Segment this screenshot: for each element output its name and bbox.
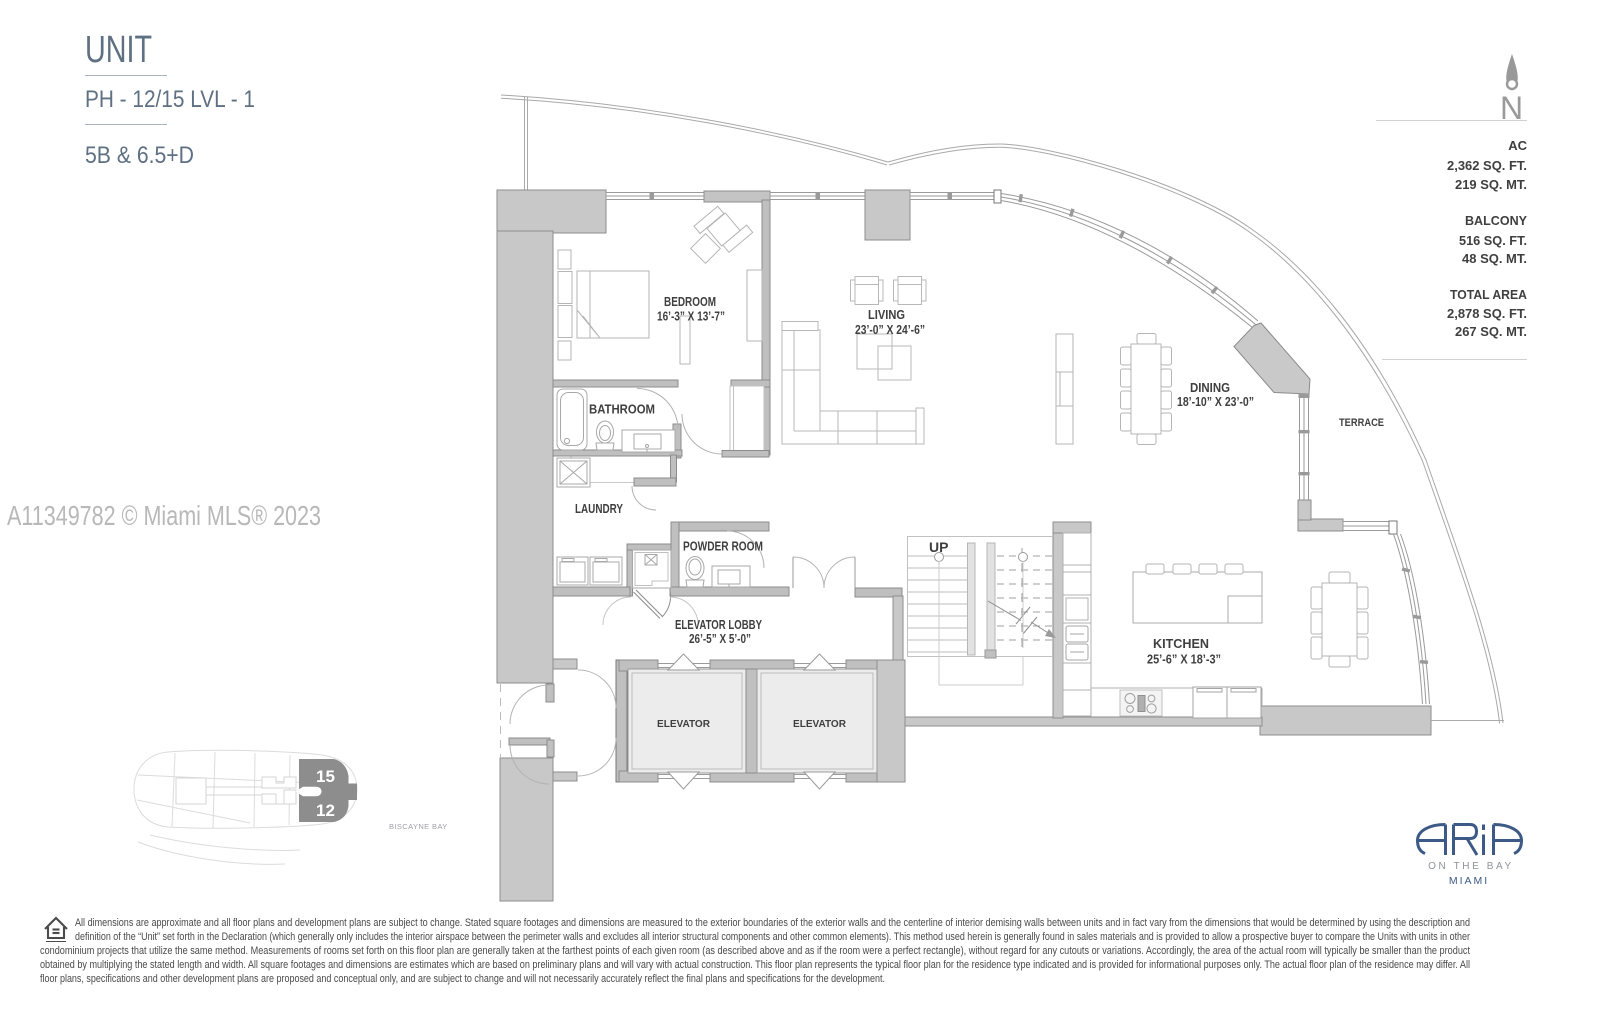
svg-text:23’-0” X 24’-6”: 23’-0” X 24’-6” [855,323,925,337]
svg-text:16’-3” X 13’-7”: 16’-3” X 13’-7” [657,310,725,324]
svg-text:BEDROOM: BEDROOM [664,295,716,309]
svg-text:MIAMI: MIAMI [1449,875,1489,887]
svg-text:2,878 SQ. FT.: 2,878 SQ. FT. [1447,306,1527,321]
svg-text:POWDER ROOM: POWDER ROOM [683,540,763,554]
svg-text:condominium projects that util: condominium projects that utilize the sa… [40,945,1470,957]
svg-text:UP: UP [929,539,948,555]
svg-text:KITCHEN: KITCHEN [1153,637,1209,651]
svg-text:A11349782 © Miami MLS® 2023: A11349782 © Miami MLS® 2023 [7,500,321,531]
svg-text:516 SQ. FT.: 516 SQ. FT. [1459,233,1527,248]
svg-text:AC: AC [1508,138,1527,153]
svg-text:ON THE BAY: ON THE BAY [1428,861,1514,872]
svg-text:UNIT: UNIT [85,29,152,71]
svg-text:ELEVATOR: ELEVATOR [793,718,846,730]
svg-text:LAUNDRY: LAUNDRY [575,502,624,516]
svg-text:18’-10” X 23’-0”: 18’-10” X 23’-0” [1177,395,1254,409]
svg-text:TERRACE: TERRACE [1339,417,1384,429]
svg-text:12: 12 [316,801,335,820]
svg-text:267 SQ. MT.: 267 SQ. MT. [1455,324,1527,339]
svg-text:DINING: DINING [1190,381,1230,395]
svg-text:2,362 SQ. FT.: 2,362 SQ. FT. [1447,158,1527,173]
svg-text:BALCONY: BALCONY [1465,213,1527,228]
svg-text:219 SQ. MT.: 219 SQ. MT. [1455,177,1527,192]
svg-text:5B & 6.5+D: 5B & 6.5+D [85,142,194,169]
svg-text:PH - 12/15 LVL - 1: PH - 12/15 LVL - 1 [85,86,255,113]
svg-text:TOTAL AREA: TOTAL AREA [1450,287,1528,302]
svg-text:obtained by multiplying the st: obtained by multiplying the stated lengt… [40,959,1470,971]
svg-text:25’-6” X 18’-3”: 25’-6” X 18’-3” [1147,653,1221,667]
svg-text:BISCAYNE BAY: BISCAYNE BAY [389,822,448,831]
svg-text:ELEVATOR LOBBY: ELEVATOR LOBBY [675,618,763,632]
svg-text:48 SQ. MT.: 48 SQ. MT. [1462,251,1527,266]
svg-text:BATHROOM: BATHROOM [589,403,655,417]
svg-text:definition of the “Unit” set f: definition of the “Unit” set forth in th… [75,931,1470,943]
svg-text:26’-5” X 5’-0”: 26’-5” X 5’-0” [689,632,751,646]
svg-text:ELEVATOR: ELEVATOR [657,718,710,730]
svg-text:floor plans, specifications an: floor plans, specifications and other de… [40,973,885,985]
svg-text:All dimensions are approximate: All dimensions are approximate and all f… [75,917,1470,929]
svg-text:LIVING: LIVING [868,308,905,322]
svg-text:15: 15 [316,767,335,786]
